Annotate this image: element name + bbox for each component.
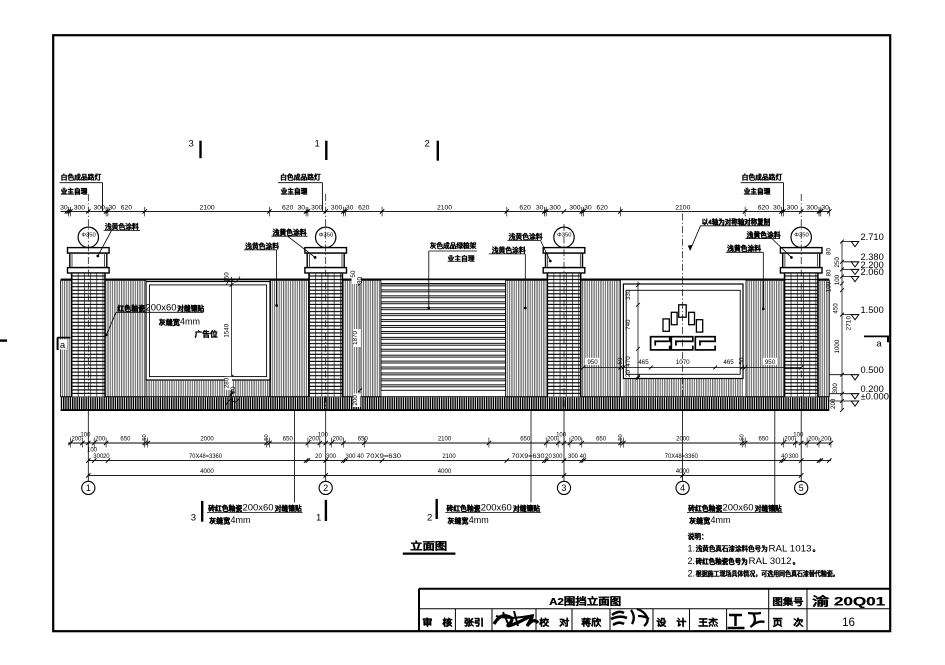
- svg-text:100: 100: [825, 281, 832, 292]
- svg-text:a: a: [876, 338, 882, 349]
- svg-text:±0.000: ±0.000: [861, 391, 889, 401]
- svg-text:2.060: 2.060: [861, 267, 884, 277]
- svg-text:浅黄色涂料: 浅黄色涂料: [747, 230, 781, 239]
- svg-text:650: 650: [283, 437, 294, 443]
- svg-text:1.500: 1.500: [861, 305, 884, 315]
- svg-text:50: 50: [264, 434, 270, 440]
- svg-text:2100: 2100: [200, 205, 215, 212]
- svg-text:4000: 4000: [438, 468, 452, 475]
- svg-text:470: 470: [625, 356, 632, 367]
- svg-text:30: 30: [536, 205, 544, 212]
- svg-text:150: 150: [223, 272, 230, 283]
- svg-text:300: 300: [806, 205, 818, 212]
- svg-text:620: 620: [519, 205, 531, 212]
- svg-text:70X48=3360: 70X48=3360: [665, 454, 699, 460]
- svg-text:2: 2: [427, 512, 432, 523]
- svg-text:设 计: 设 计: [657, 617, 688, 628]
- svg-text:。: 。: [793, 559, 800, 566]
- svg-text:广告位: 广告位: [195, 330, 219, 339]
- svg-text:620: 620: [758, 205, 770, 212]
- svg-text:2: 2: [323, 483, 328, 493]
- svg-text:30: 30: [108, 205, 116, 212]
- svg-text:100: 100: [556, 433, 567, 439]
- svg-text:80: 80: [825, 248, 832, 255]
- svg-text:RAL 3012: RAL 3012: [749, 556, 792, 567]
- svg-text:2.: 2.: [688, 556, 696, 566]
- svg-text:红色釉瓷: 红色釉瓷: [117, 304, 145, 313]
- svg-text:30: 30: [584, 205, 592, 212]
- svg-text:300: 300: [832, 383, 839, 394]
- svg-text:3: 3: [562, 483, 567, 493]
- svg-text:200x60: 200x60: [723, 502, 754, 513]
- svg-text:200: 200: [808, 437, 819, 443]
- svg-text:1: 1: [86, 483, 91, 493]
- svg-text:650: 650: [358, 437, 369, 443]
- svg-text:300: 300: [788, 454, 799, 460]
- svg-text:浅黄色涂料: 浅黄色涂料: [245, 242, 279, 251]
- svg-text:300: 300: [552, 454, 563, 460]
- svg-text:浅黄色真石漆涂料色号为: 浅黄色真石漆涂料色号为: [696, 544, 768, 553]
- svg-text:200: 200: [333, 437, 344, 443]
- svg-text:3: 3: [189, 139, 194, 150]
- svg-text:200: 200: [352, 395, 359, 406]
- svg-text:50: 50: [740, 434, 746, 440]
- svg-text:浅黄色涂料: 浅黄色涂料: [727, 244, 761, 253]
- svg-text:280: 280: [223, 377, 230, 388]
- svg-text:说明：: 说明：: [688, 532, 708, 541]
- svg-text:白色成品路灯: 白色成品路灯: [280, 173, 321, 182]
- svg-text:业主自理: 业主自理: [281, 187, 308, 196]
- svg-text:校 对: 校 对: [539, 617, 570, 628]
- svg-text:4mm: 4mm: [469, 515, 489, 526]
- svg-text:对缝镶贴: 对缝镶贴: [177, 304, 204, 313]
- svg-text:0.500: 0.500: [861, 365, 884, 375]
- svg-text:1: 1: [316, 512, 321, 523]
- svg-text:200: 200: [571, 437, 582, 443]
- svg-text:灰缝宽: 灰缝宽: [448, 517, 469, 526]
- svg-text:300: 300: [549, 205, 561, 212]
- svg-text:70X9=630: 70X9=630: [366, 454, 402, 460]
- svg-text:950: 950: [587, 359, 598, 366]
- svg-text:300: 300: [311, 205, 323, 212]
- svg-text:20: 20: [625, 370, 632, 377]
- svg-text:蒋欣: 蒋欣: [581, 617, 602, 628]
- svg-text:1070: 1070: [676, 359, 690, 366]
- svg-text:灰缝宽: 灰缝宽: [689, 517, 710, 526]
- svg-text:2100: 2100: [675, 205, 690, 212]
- svg-text:20: 20: [545, 454, 552, 460]
- svg-text:30: 30: [60, 205, 68, 212]
- svg-text:30: 30: [773, 205, 781, 212]
- svg-text:对缝镶贴: 对缝镶贴: [513, 504, 540, 513]
- svg-text:业主自理: 业主自理: [448, 254, 475, 263]
- svg-text:465: 465: [638, 359, 649, 366]
- svg-text:1: 1: [315, 139, 320, 150]
- svg-text:2.710: 2.710: [861, 232, 884, 242]
- svg-text:对缝镶贴: 对缝镶贴: [275, 504, 302, 513]
- svg-text:砖红色釉瓷: 砖红色釉瓷: [688, 504, 722, 513]
- svg-text:80: 80: [825, 269, 832, 276]
- svg-text:对缝镶贴: 对缝镶贴: [755, 504, 782, 513]
- svg-text:2100: 2100: [438, 437, 452, 443]
- svg-text:200: 200: [830, 398, 837, 409]
- svg-text:浅黄色涂料: 浅黄色涂料: [492, 246, 526, 255]
- svg-text:王杰: 王杰: [698, 617, 719, 628]
- svg-text:2000: 2000: [200, 437, 214, 443]
- svg-text:650: 650: [758, 437, 769, 443]
- svg-text:灰色成品绿植架: 灰色成品绿植架: [430, 241, 477, 250]
- svg-text:Φ350: Φ350: [81, 233, 96, 239]
- svg-text:A2围挡立面图: A2围挡立面图: [549, 595, 621, 608]
- svg-text:图集号: 图集号: [773, 596, 804, 607]
- svg-text:620: 620: [358, 205, 370, 212]
- svg-text:。: 。: [813, 546, 820, 553]
- svg-text:浅黄色涂料: 浅黄色涂料: [105, 222, 139, 231]
- svg-text:950: 950: [765, 359, 776, 366]
- svg-text:40: 40: [357, 454, 364, 460]
- svg-text:300: 300: [326, 454, 337, 460]
- svg-text:浅黄色涂料: 浅黄色涂料: [509, 232, 543, 241]
- svg-text:白色成品路灯: 白色成品路灯: [742, 173, 783, 182]
- svg-text:200x60: 200x60: [481, 502, 512, 513]
- svg-text:40: 40: [781, 454, 788, 460]
- svg-text:4: 4: [680, 483, 685, 493]
- svg-text:张引: 张引: [464, 617, 484, 628]
- svg-text:70X9=630: 70X9=630: [512, 454, 546, 460]
- svg-text:100: 100: [318, 433, 329, 439]
- svg-text:300: 300: [568, 454, 579, 460]
- svg-text:650: 650: [520, 437, 531, 443]
- svg-text:4mm: 4mm: [711, 515, 731, 526]
- svg-text:30: 30: [298, 205, 306, 212]
- svg-text:650: 650: [596, 437, 607, 443]
- svg-text:50: 50: [350, 270, 357, 277]
- svg-text:70X48=3360: 70X48=3360: [189, 454, 223, 460]
- svg-text:砖红色釉瓷色号为: 砖红色釉瓷色号为: [696, 557, 748, 566]
- svg-text:80: 80: [357, 277, 364, 284]
- svg-text:30: 30: [821, 205, 829, 212]
- svg-text:页 次: 页 次: [773, 617, 805, 628]
- svg-text:450: 450: [833, 303, 840, 314]
- svg-text:620: 620: [596, 205, 608, 212]
- svg-text:200: 200: [821, 437, 832, 443]
- svg-text:2.: 2.: [688, 569, 696, 579]
- svg-text:1000: 1000: [834, 339, 841, 353]
- svg-text:以4轴为对称轴对称复制: 以4轴为对称轴对称复制: [702, 218, 771, 227]
- svg-text:渝 20Q01: 渝 20Q01: [812, 594, 885, 609]
- svg-text:4mm: 4mm: [180, 316, 200, 327]
- svg-text:a: a: [60, 340, 66, 351]
- svg-text:20: 20: [230, 386, 237, 393]
- svg-text:20: 20: [103, 454, 110, 460]
- svg-text:465: 465: [723, 359, 734, 366]
- svg-text:2000: 2000: [676, 437, 690, 443]
- svg-text:1.: 1.: [688, 544, 696, 554]
- svg-text:4000: 4000: [200, 468, 214, 475]
- svg-text:业主自理: 业主自理: [61, 187, 88, 196]
- svg-text:3: 3: [191, 512, 196, 523]
- svg-text:2710: 2710: [845, 316, 852, 331]
- svg-text:50: 50: [617, 357, 624, 364]
- svg-text:1870: 1870: [352, 331, 359, 345]
- svg-text:300: 300: [94, 205, 106, 212]
- svg-text:RAL 1013: RAL 1013: [769, 544, 812, 555]
- svg-text:20: 20: [315, 454, 322, 460]
- svg-text:1540: 1540: [223, 323, 230, 337]
- svg-text:2100: 2100: [437, 205, 452, 212]
- svg-text:100: 100: [793, 433, 804, 439]
- svg-text:50: 50: [142, 434, 148, 440]
- svg-text:审 核: 审 核: [423, 617, 454, 628]
- svg-text:100: 100: [834, 274, 841, 285]
- svg-text:300: 300: [787, 205, 799, 212]
- svg-text:740: 740: [625, 319, 632, 330]
- svg-text:5: 5: [799, 483, 804, 493]
- svg-text:300: 300: [345, 454, 356, 460]
- svg-text:30: 30: [346, 205, 354, 212]
- svg-text:4mm: 4mm: [231, 515, 251, 526]
- svg-text:业主自理: 业主自理: [744, 187, 771, 196]
- svg-text:白色成品路灯: 白色成品路灯: [61, 173, 102, 182]
- svg-text:250: 250: [834, 257, 841, 268]
- svg-text:2100: 2100: [442, 454, 456, 460]
- svg-text:Φ350: Φ350: [319, 233, 334, 239]
- svg-text:灰缝宽: 灰缝宽: [159, 318, 180, 327]
- svg-text:50: 50: [739, 357, 746, 364]
- svg-text:砖红色釉瓷: 砖红色釉瓷: [208, 504, 242, 513]
- svg-text:16: 16: [842, 617, 855, 629]
- svg-text:300: 300: [74, 205, 86, 212]
- svg-text:砖红色釉瓷: 砖红色釉瓷: [447, 504, 481, 513]
- svg-text:330: 330: [625, 289, 632, 300]
- svg-text:300: 300: [331, 205, 343, 212]
- svg-text:620: 620: [121, 205, 133, 212]
- svg-text:100: 100: [80, 433, 91, 439]
- svg-text:40: 40: [580, 454, 587, 460]
- svg-text:200x60: 200x60: [243, 502, 274, 513]
- svg-text:Φ350: Φ350: [557, 233, 572, 239]
- svg-text:50: 50: [618, 434, 624, 440]
- svg-text:2: 2: [425, 139, 430, 150]
- svg-text:200: 200: [95, 437, 106, 443]
- svg-text:浅黄色涂料: 浅黄色涂料: [273, 228, 307, 237]
- svg-text:620: 620: [282, 205, 294, 212]
- svg-text:650: 650: [120, 437, 131, 443]
- svg-text:根据施工现场具体情况，可选用同色真石漆替代釉瓷。: 根据施工现场具体情况，可选用同色真石漆替代釉瓷。: [696, 569, 839, 578]
- svg-text:Φ350: Φ350: [794, 233, 809, 239]
- svg-text:立面图: 立面图: [410, 540, 447, 553]
- svg-text:300: 300: [569, 205, 581, 212]
- svg-text:灰缝宽: 灰缝宽: [209, 517, 230, 526]
